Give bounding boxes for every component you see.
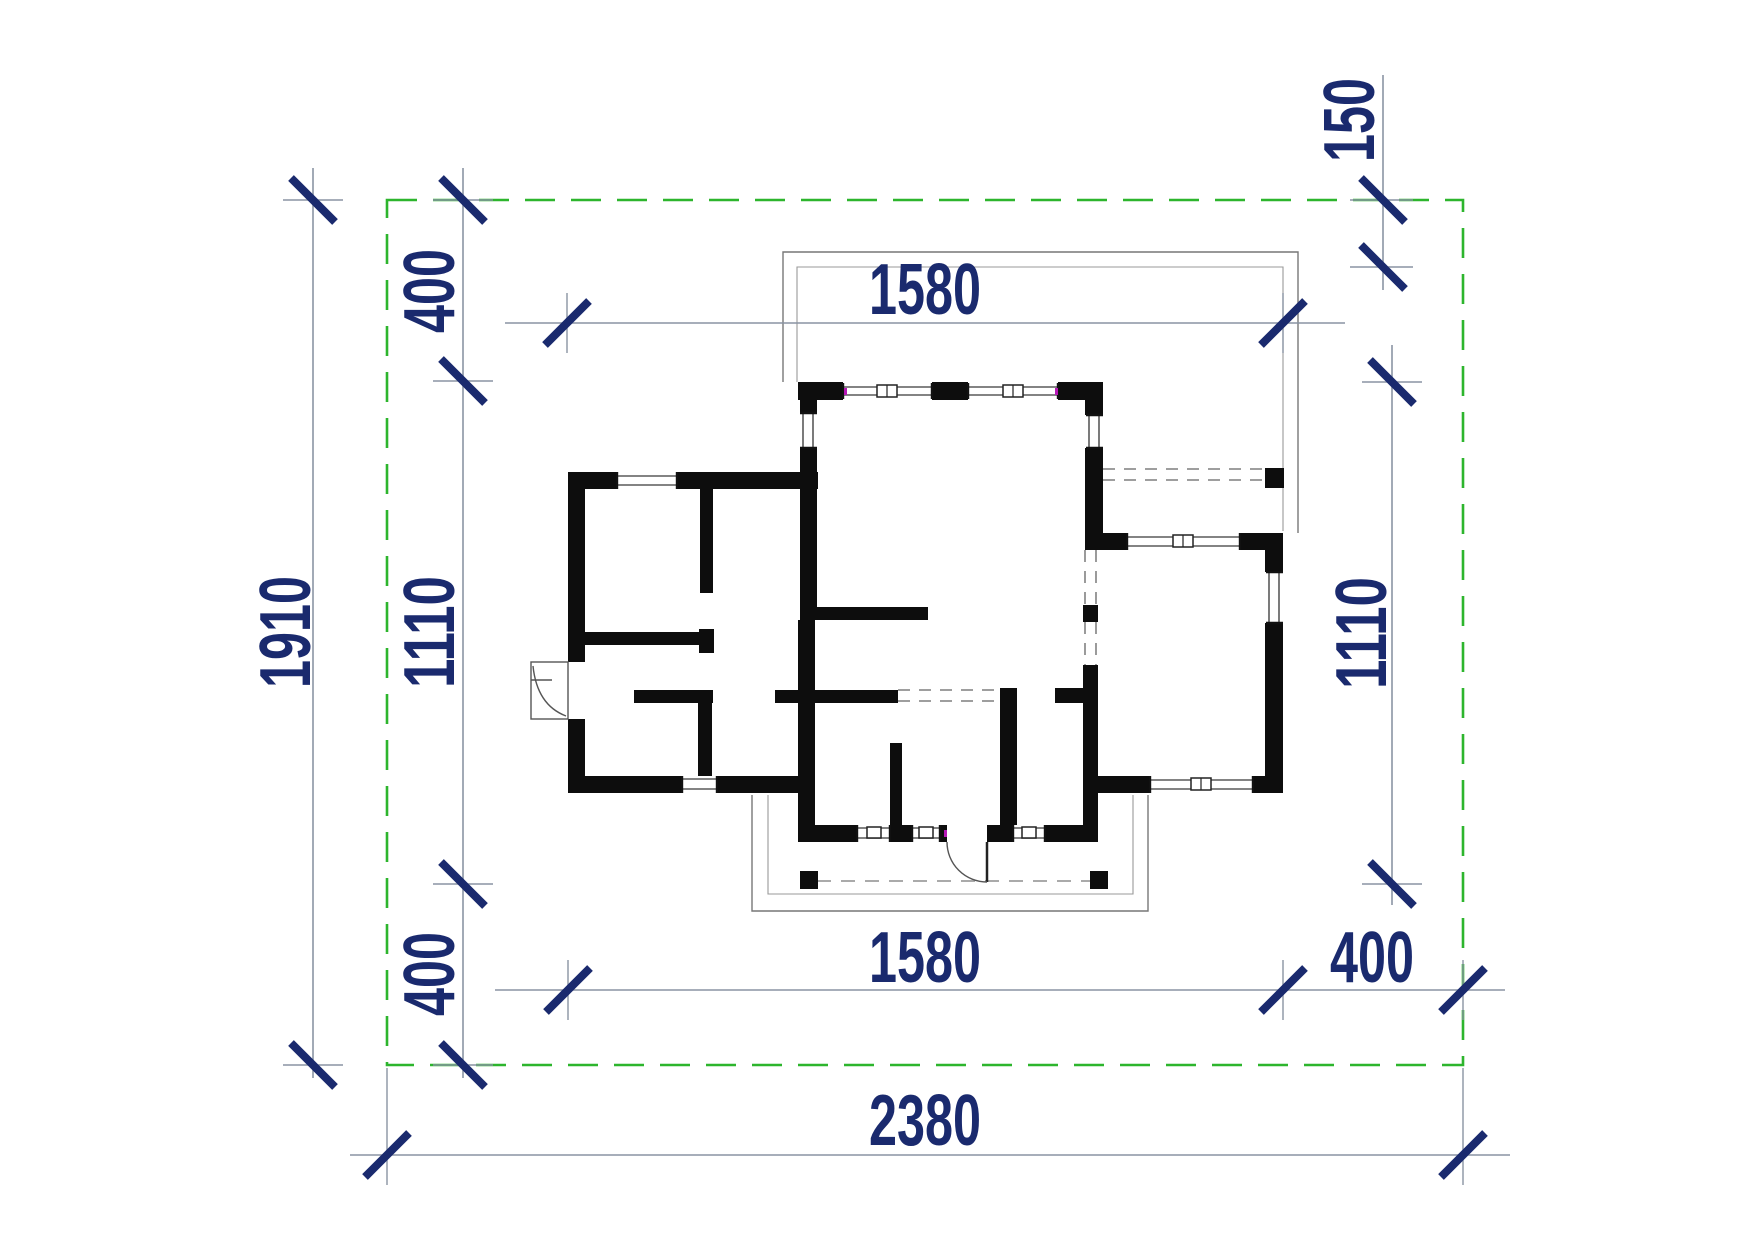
- window: [857, 825, 890, 842]
- dim-label-setback-bottom-right: 400: [1330, 918, 1414, 998]
- window: [617, 472, 677, 489]
- side-door: [531, 662, 568, 719]
- window: [1013, 825, 1045, 842]
- dim-chain-bottom: 1580 400: [495, 918, 1505, 1020]
- dim-label-right-depth: 1110: [1322, 577, 1402, 689]
- roof-outline-top: [783, 252, 1298, 533]
- dim-site-width: 2380: [350, 1068, 1510, 1185]
- walls: [568, 382, 1283, 842]
- dim-label-bottom-width: 1580: [869, 918, 981, 998]
- windows: [617, 383, 1283, 842]
- window: [1086, 415, 1103, 448]
- dim-label-site-depth: 1910: [246, 576, 326, 688]
- window: [1150, 776, 1253, 793]
- dim-right-depth: 1110: [1322, 345, 1422, 906]
- dim-label-top-width: 1580: [869, 250, 981, 330]
- window: [1266, 572, 1283, 623]
- window: [682, 776, 717, 793]
- window-marker: [944, 830, 947, 837]
- dim-setback-top-right: 150: [1310, 75, 1413, 290]
- dim-label-left-depth: 1110: [390, 576, 470, 688]
- window: [1127, 533, 1240, 550]
- floor-plan-page: 1910 400 1110 400 1580 150 1110 1580 400: [0, 0, 1754, 1240]
- dim-chain-left: 400 1110 400: [390, 168, 493, 1087]
- dim-label-setback-top-right: 150: [1310, 78, 1390, 162]
- floor-plan-canvas: 1910 400 1110 400 1580 150 1110 1580 400: [0, 0, 1754, 1240]
- entry-door: [947, 842, 987, 882]
- porch-pillar-right: [1090, 871, 1108, 889]
- window-marker: [844, 388, 847, 395]
- doors: [531, 662, 987, 882]
- dim-label-site-width: 2380: [869, 1081, 981, 1161]
- dim-top-width: 1580: [505, 250, 1345, 353]
- window: [800, 413, 817, 448]
- dim-label-setback-bottom-left: 400: [390, 932, 470, 1016]
- dim-site-depth: 1910: [246, 168, 343, 1087]
- window: [912, 825, 940, 842]
- porch-pillar-left: [800, 871, 818, 889]
- window: [968, 383, 1058, 399]
- window-marker: [1055, 388, 1058, 395]
- dim-label-setback-top-left: 400: [390, 249, 470, 333]
- window: [843, 383, 932, 399]
- terrace-pillar: [1265, 468, 1284, 488]
